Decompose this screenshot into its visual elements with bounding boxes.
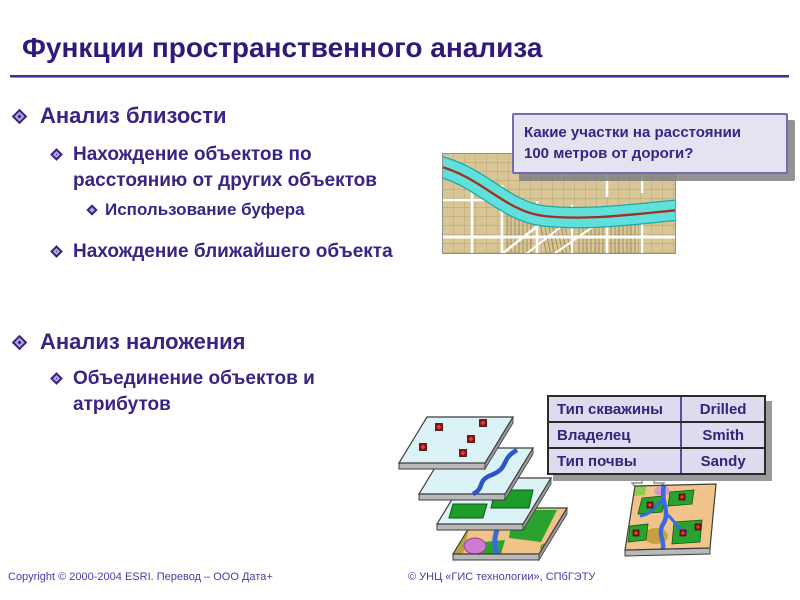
table-cell-label: Тип почвы — [549, 449, 682, 473]
bullet-overlay-analysis: Анализ наложения — [14, 329, 246, 355]
bullet-text-line1: Объединение объектов и — [73, 366, 315, 392]
bullet-text-line1: Нахождение объектов по — [73, 142, 377, 168]
diamond-bullet-icon — [14, 111, 25, 122]
footer-organization: © УНЦ «ГИС технологии», СПбГЭТУ — [408, 571, 595, 583]
layer-stack-image — [393, 414, 573, 564]
table-row: Тип почвы Sandy — [549, 447, 764, 473]
title-underline — [10, 75, 789, 78]
callout-question-box: Какие участки на расстоянии 100 метров о… — [512, 113, 788, 174]
page-title: Функции пространственного анализа — [22, 32, 542, 64]
diamond-bullet-icon — [88, 206, 96, 214]
diamond-bullet-icon — [52, 150, 61, 159]
bullet-text: Использование буфера — [105, 200, 305, 220]
footer-copyright: Copyright © 2000-2004 ESRI. Перевод – ОО… — [8, 571, 273, 583]
bullet-text: Анализ близости — [40, 103, 227, 129]
bullet-buffer-use: Использование буфера — [88, 200, 305, 220]
overlay-map-image — [612, 470, 737, 562]
table-cell-value: Drilled — [682, 397, 764, 421]
table-cell-label: Владелец — [549, 423, 682, 447]
diamond-bullet-icon — [52, 374, 61, 383]
bullet-nearest-object: Нахождение ближайшего объекта — [52, 239, 393, 265]
callout-line2: 100 метров от дороги? — [524, 143, 780, 164]
table-row: Владелец Smith — [549, 421, 764, 447]
table-cell-value: Sandy — [682, 449, 764, 473]
bullet-union-objects-attributes: Объединение объектов и атрибутов — [52, 366, 315, 418]
diamond-bullet-icon — [52, 247, 61, 256]
bullet-find-by-distance: Нахождение объектов по расстоянию от дру… — [52, 142, 377, 194]
bullet-text-line2: расстоянию от других объектов — [73, 168, 377, 194]
bullet-text: Анализ наложения — [40, 329, 246, 355]
table-row: Тип скважины Drilled — [549, 397, 764, 421]
table-cell-label: Тип скважины — [549, 397, 682, 421]
callout-line1: Какие участки на расстоянии — [524, 122, 780, 143]
diamond-bullet-icon — [14, 337, 25, 348]
attribute-table: Тип скважины Drilled Владелец Smith Тип … — [547, 395, 766, 475]
bullet-text-line2: атрибутов — [73, 392, 315, 418]
bullet-text: Нахождение ближайшего объекта — [73, 239, 393, 265]
table-cell-value: Smith — [682, 423, 764, 447]
bullet-proximity-analysis: Анализ близости — [14, 103, 227, 129]
